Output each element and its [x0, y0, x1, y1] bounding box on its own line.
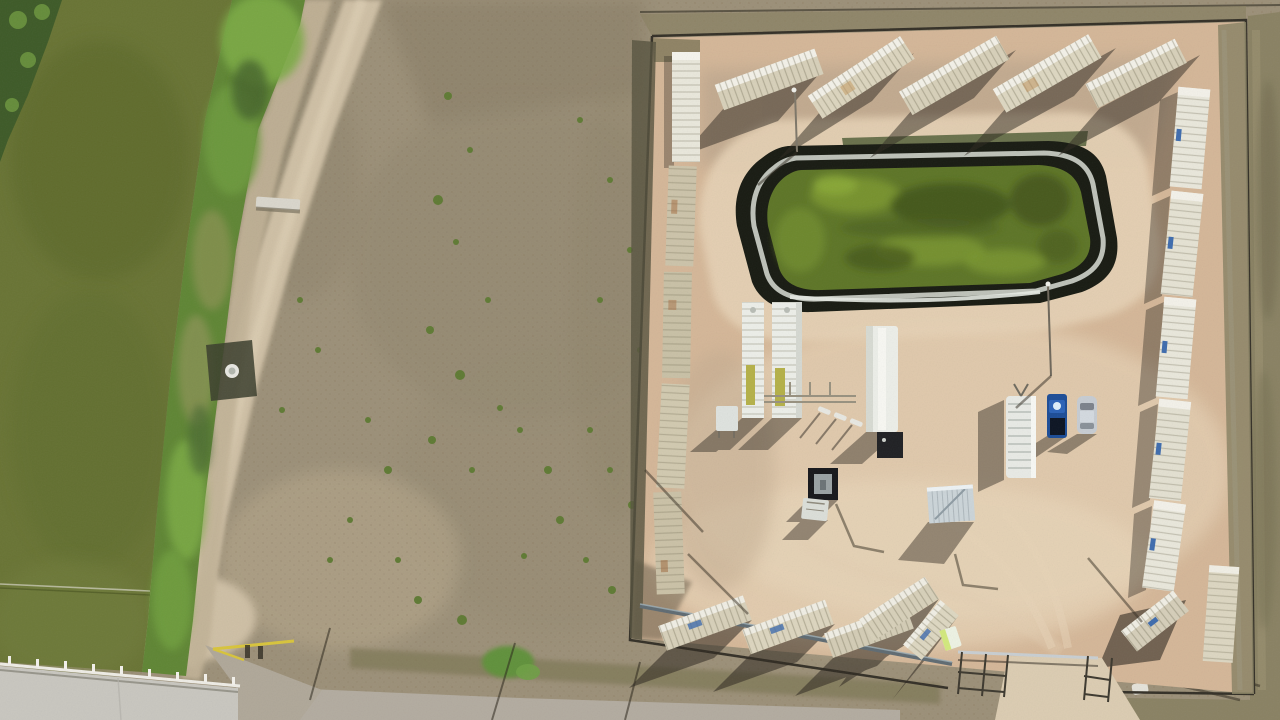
aerial-photo-viewport — [0, 0, 1280, 720]
photo-grain-overlay — [0, 0, 1280, 720]
aerial-photo — [0, 0, 1280, 720]
